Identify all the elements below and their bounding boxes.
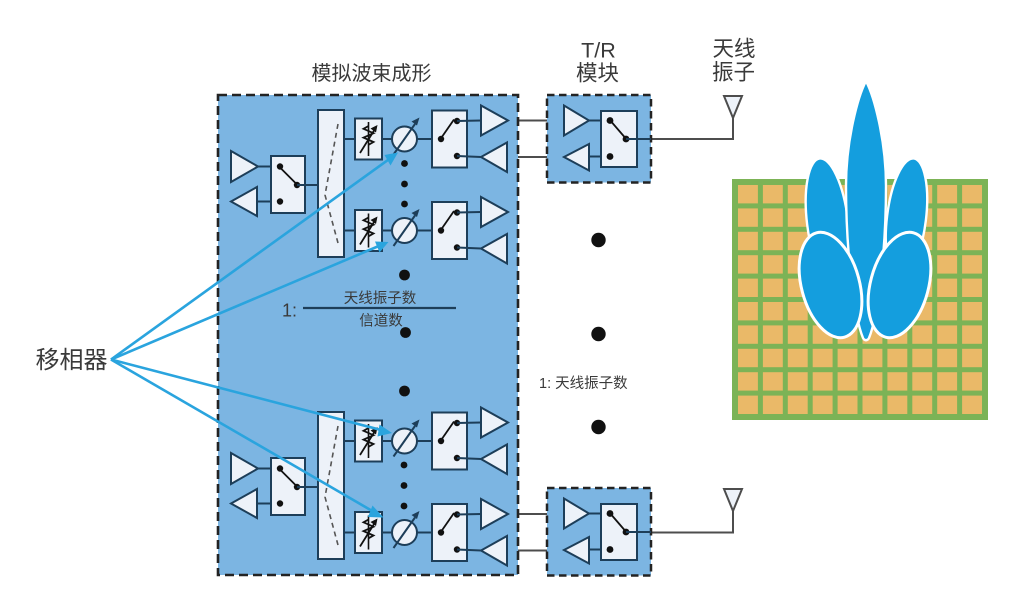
svg-text:模拟波束成形: 模拟波束成形	[312, 62, 432, 85]
svg-text:移相器: 移相器	[36, 347, 108, 374]
svg-text:振子: 振子	[712, 61, 755, 85]
svg-text:模块: 模块	[576, 62, 619, 86]
svg-text:T/R: T/R	[581, 39, 616, 63]
svg-text:信道数: 信道数	[359, 313, 403, 330]
svg-text:天线振子数: 天线振子数	[344, 290, 417, 307]
svg-text:1:: 1:	[282, 301, 297, 321]
svg-text:1: 天线振子数: 1: 天线振子数	[539, 375, 628, 392]
svg-text:天线: 天线	[712, 37, 755, 61]
